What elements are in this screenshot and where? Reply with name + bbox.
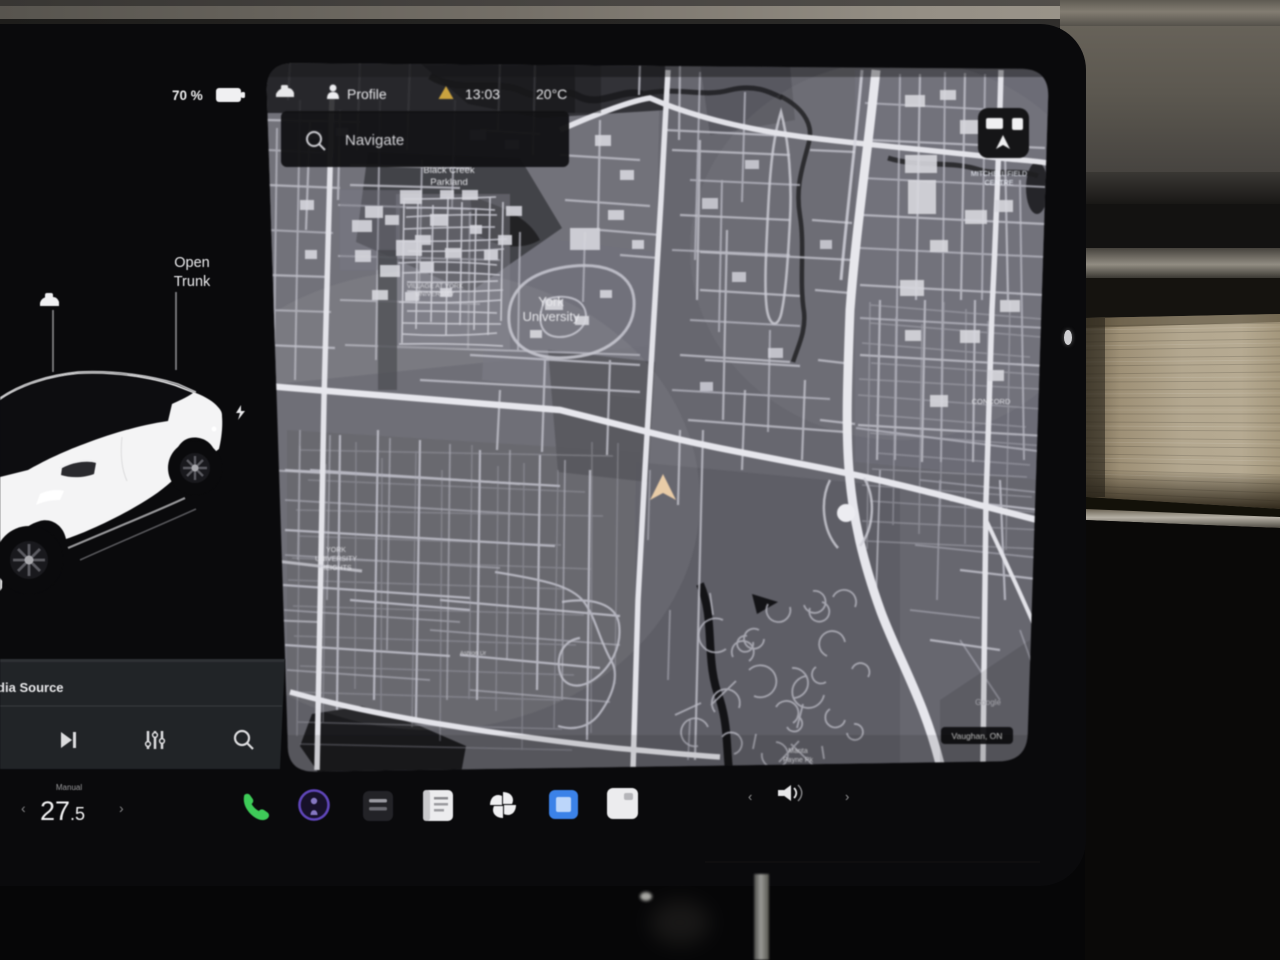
svg-text:70 %: 70 % <box>172 88 203 103</box>
svg-text:‹: ‹ <box>748 789 752 804</box>
svg-text:Media Source: Media Source <box>0 680 64 695</box>
svg-text:Trunk: Trunk <box>174 274 211 290</box>
svg-text:›: › <box>119 800 124 816</box>
svg-text:27.5: 27.5 <box>40 796 85 826</box>
svg-text:›: › <box>845 789 849 804</box>
svg-text:Open: Open <box>174 255 209 271</box>
svg-text:Manual: Manual <box>56 783 82 792</box>
svg-text:‹: ‹ <box>21 800 26 816</box>
